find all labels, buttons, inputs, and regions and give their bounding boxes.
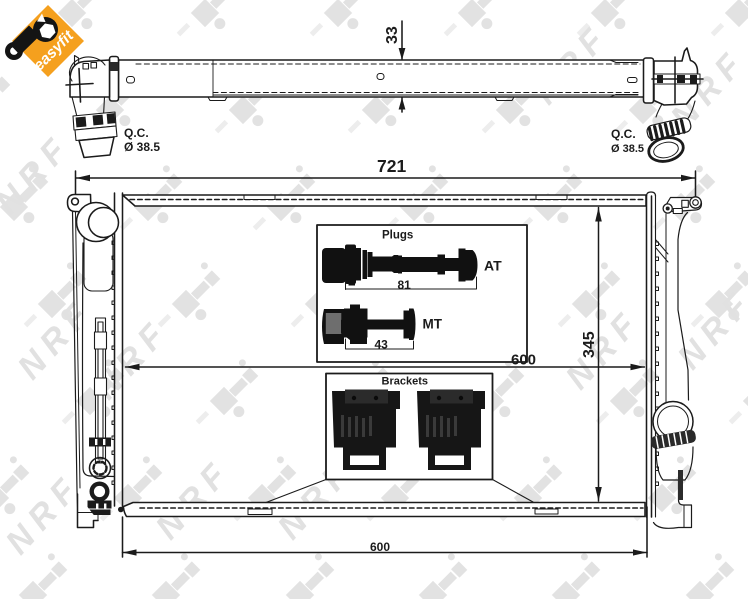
svg-text:33: 33	[384, 26, 401, 44]
svg-text:345: 345	[581, 331, 598, 358]
svg-text:Brackets: Brackets	[382, 376, 428, 388]
svg-text:MT: MT	[423, 317, 443, 332]
svg-text:43: 43	[375, 338, 389, 352]
svg-text:Ø 38.5: Ø 38.5	[611, 143, 644, 155]
svg-text:81: 81	[398, 278, 412, 292]
svg-text:Q.C.: Q.C.	[124, 126, 149, 140]
svg-text:Plugs: Plugs	[382, 230, 413, 242]
svg-text:600: 600	[370, 540, 390, 554]
svg-text:Q.C.: Q.C.	[611, 127, 636, 141]
svg-text:Ø 38.5: Ø 38.5	[124, 140, 160, 154]
svg-text:600: 600	[511, 352, 536, 369]
svg-text:AT: AT	[484, 258, 502, 274]
svg-text:721: 721	[377, 156, 406, 176]
